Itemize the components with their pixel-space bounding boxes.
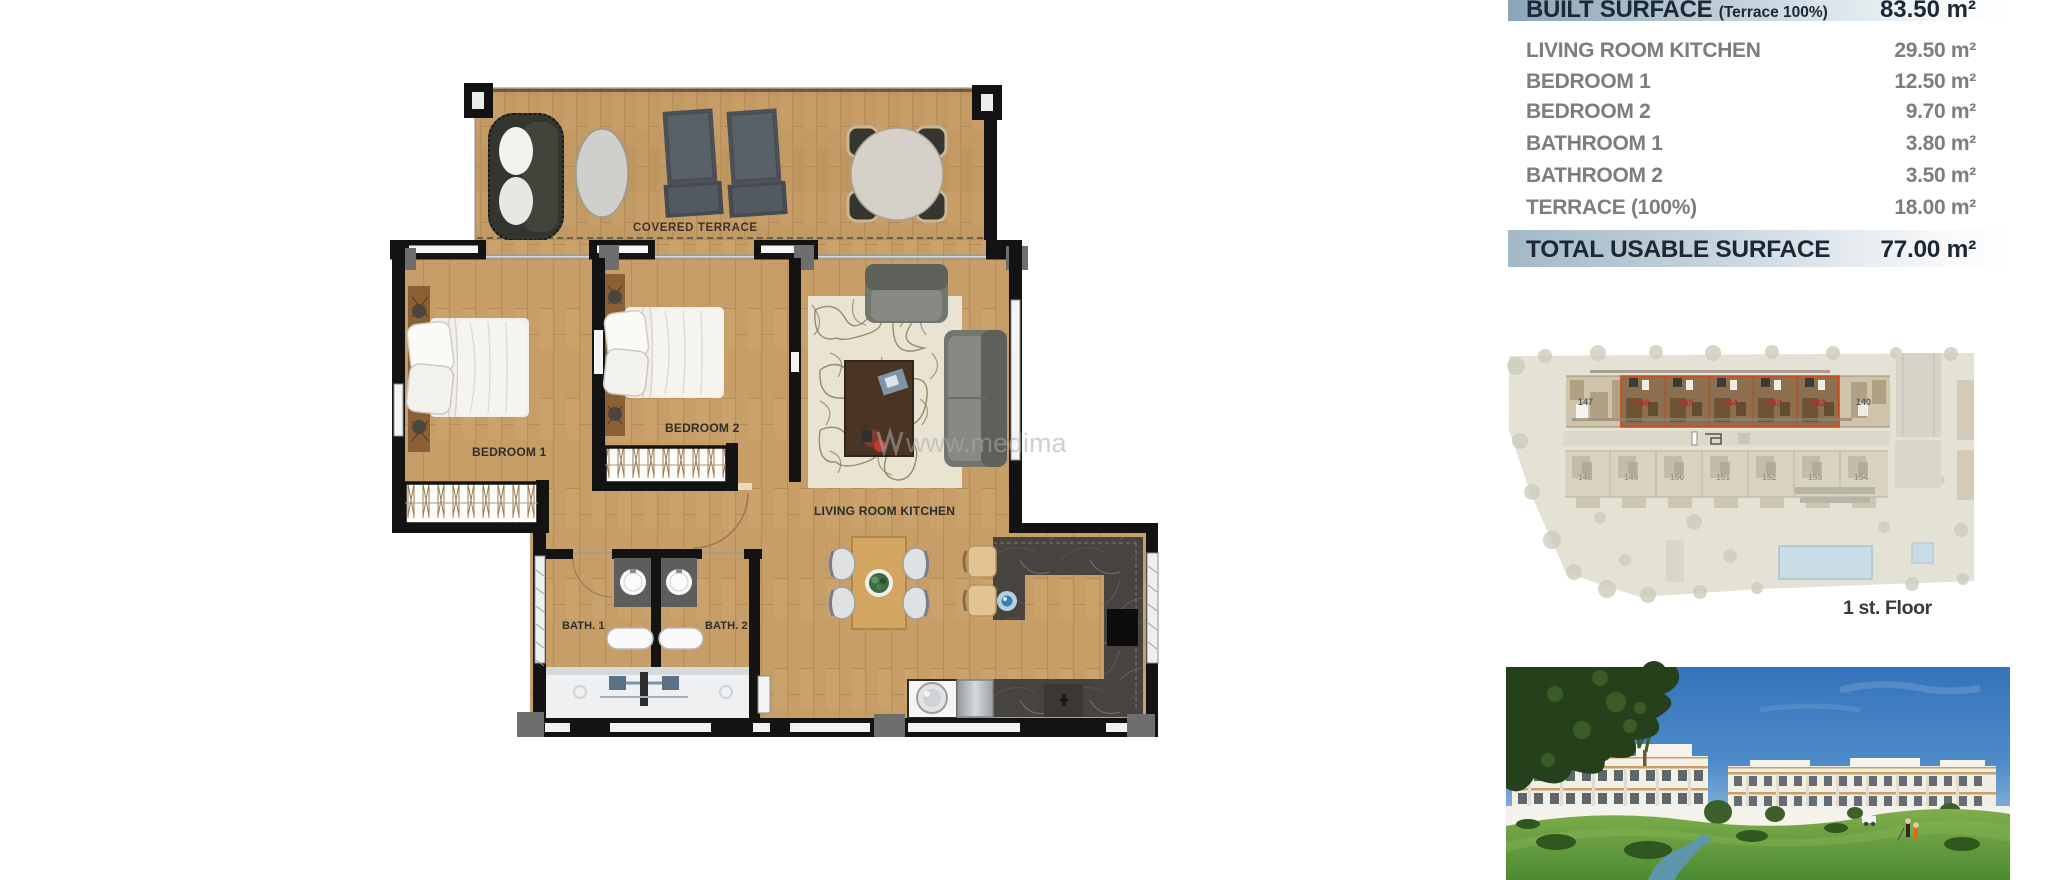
svg-text:147: 147	[1578, 397, 1593, 407]
svg-text:146: 146	[1634, 398, 1650, 409]
svg-text:140: 140	[1856, 397, 1871, 407]
svg-text:143: 143	[1766, 398, 1782, 409]
svg-text:COVERED TERRACE: COVERED TERRACE	[633, 222, 758, 234]
svg-text:142: 142	[1810, 398, 1826, 409]
svg-text:BATH. 2: BATH. 2	[705, 620, 748, 632]
svg-text:LIVING ROOM KITCHEN: LIVING ROOM KITCHEN	[814, 504, 955, 518]
svg-text:www.medima: www.medima	[905, 428, 1068, 458]
svg-text:BATH. 1: BATH. 1	[562, 620, 605, 632]
svg-text:BEDROOM 2: BEDROOM 2	[665, 421, 740, 435]
svg-text:BEDROOM 1: BEDROOM 1	[472, 445, 547, 459]
